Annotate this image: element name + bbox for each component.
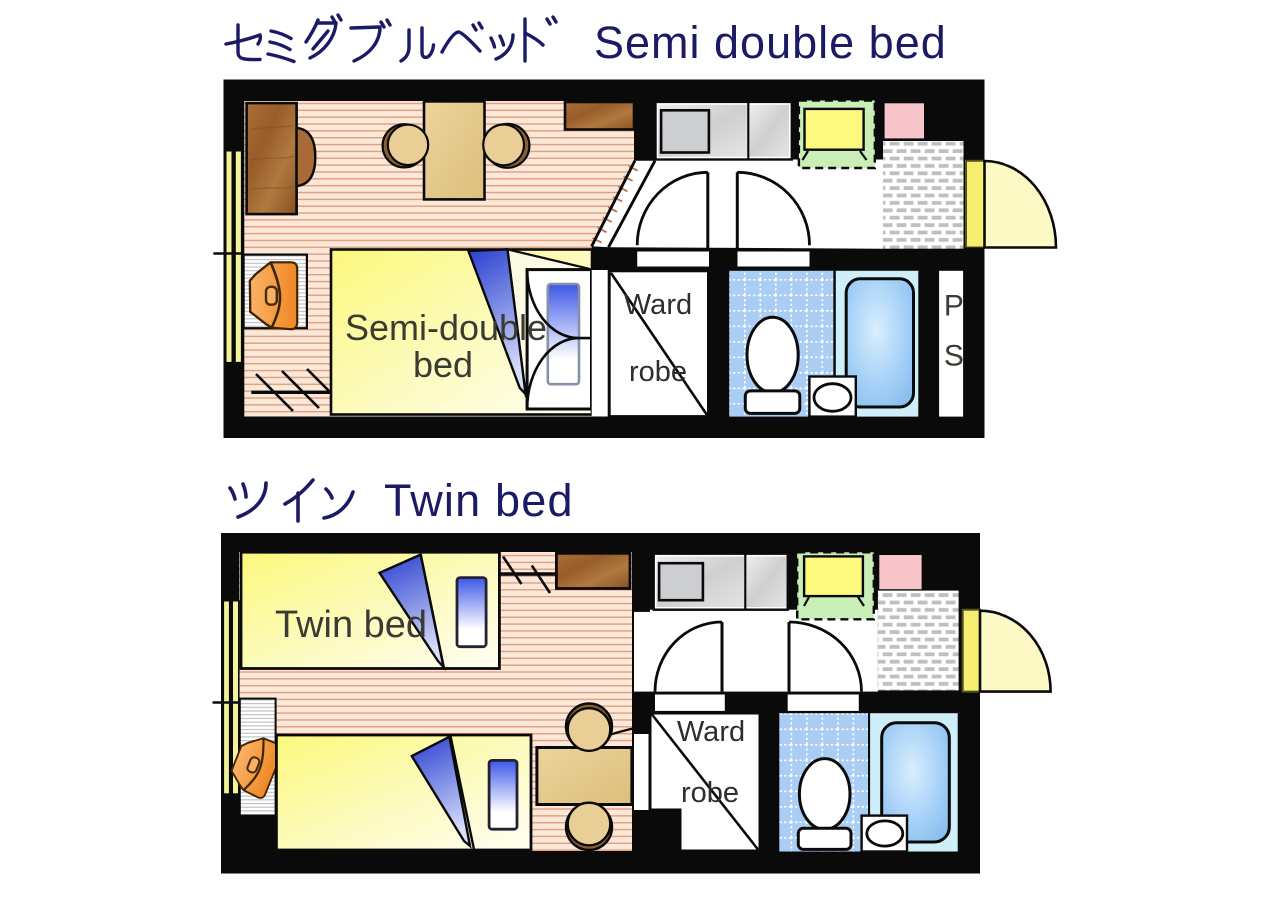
svg-text:robe: robe	[629, 356, 687, 388]
svg-text:Ward: Ward	[677, 716, 745, 748]
svg-text:bed: bed	[413, 344, 473, 385]
svg-text:Twin bed: Twin bed	[275, 604, 427, 646]
svg-text:Twin bed: Twin bed	[384, 475, 574, 526]
svg-text:S: S	[944, 339, 964, 372]
svg-text:Semi-double: Semi-double	[345, 307, 547, 348]
svg-text:robe: robe	[681, 777, 739, 809]
svg-text:P: P	[944, 290, 964, 323]
svg-text:Ward: Ward	[624, 289, 692, 321]
svg-text:Semi double bed: Semi double bed	[594, 17, 947, 68]
